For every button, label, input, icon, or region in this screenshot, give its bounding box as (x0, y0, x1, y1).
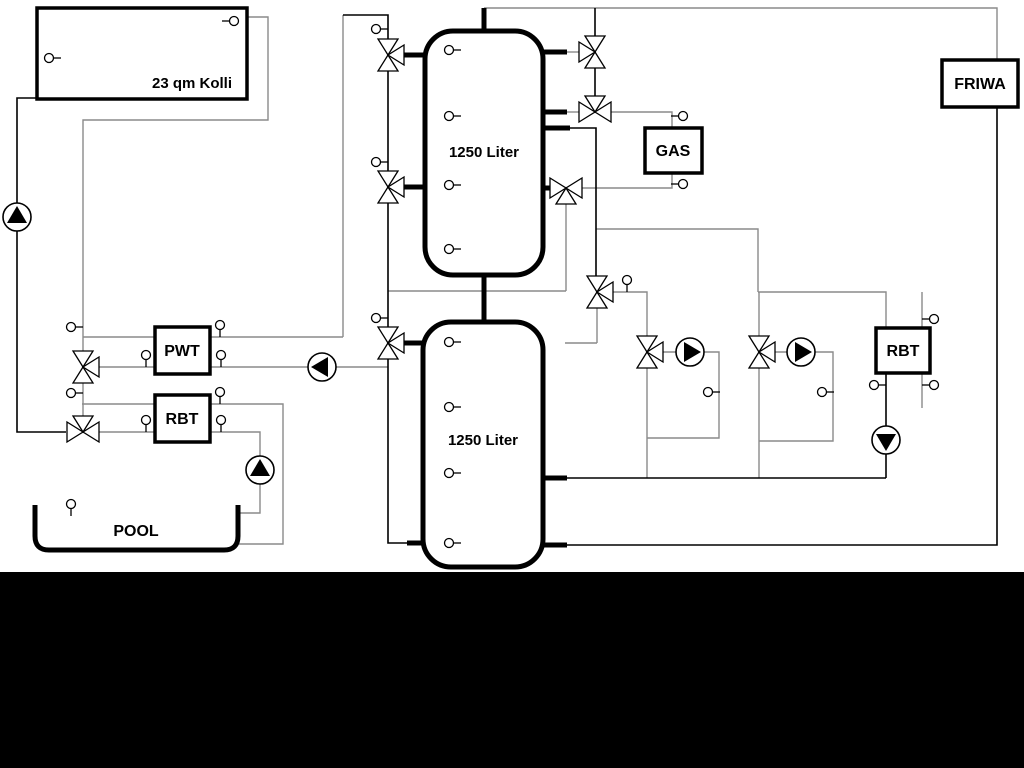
tank-lower-label: 1250 Liter (448, 432, 518, 449)
gas-label: GAS (656, 143, 691, 160)
pump-pwt-secondary (308, 353, 336, 381)
pump-pool (246, 456, 274, 484)
tank-upper-label: 1250 Liter (449, 144, 519, 161)
pump-circuit-1 (676, 338, 704, 366)
collector-label: 23 qm Kolli (152, 75, 232, 92)
rbt-heating-label: RBT (887, 343, 920, 360)
pump-circuit-2 (787, 338, 815, 366)
bottom-mask-band (0, 572, 1024, 768)
pump-rbt-heating (872, 426, 900, 454)
rbt-pool-label: RBT (166, 411, 199, 428)
pwt-label: PWT (164, 343, 200, 360)
hydraulic-schematic: 1250 Liter 1250 Liter 23 qm Kolli PWT RB… (0, 0, 1024, 768)
pump-solar (3, 203, 31, 231)
pool-label: POOL (113, 523, 159, 540)
friwa-label: FRIWA (954, 76, 1006, 93)
